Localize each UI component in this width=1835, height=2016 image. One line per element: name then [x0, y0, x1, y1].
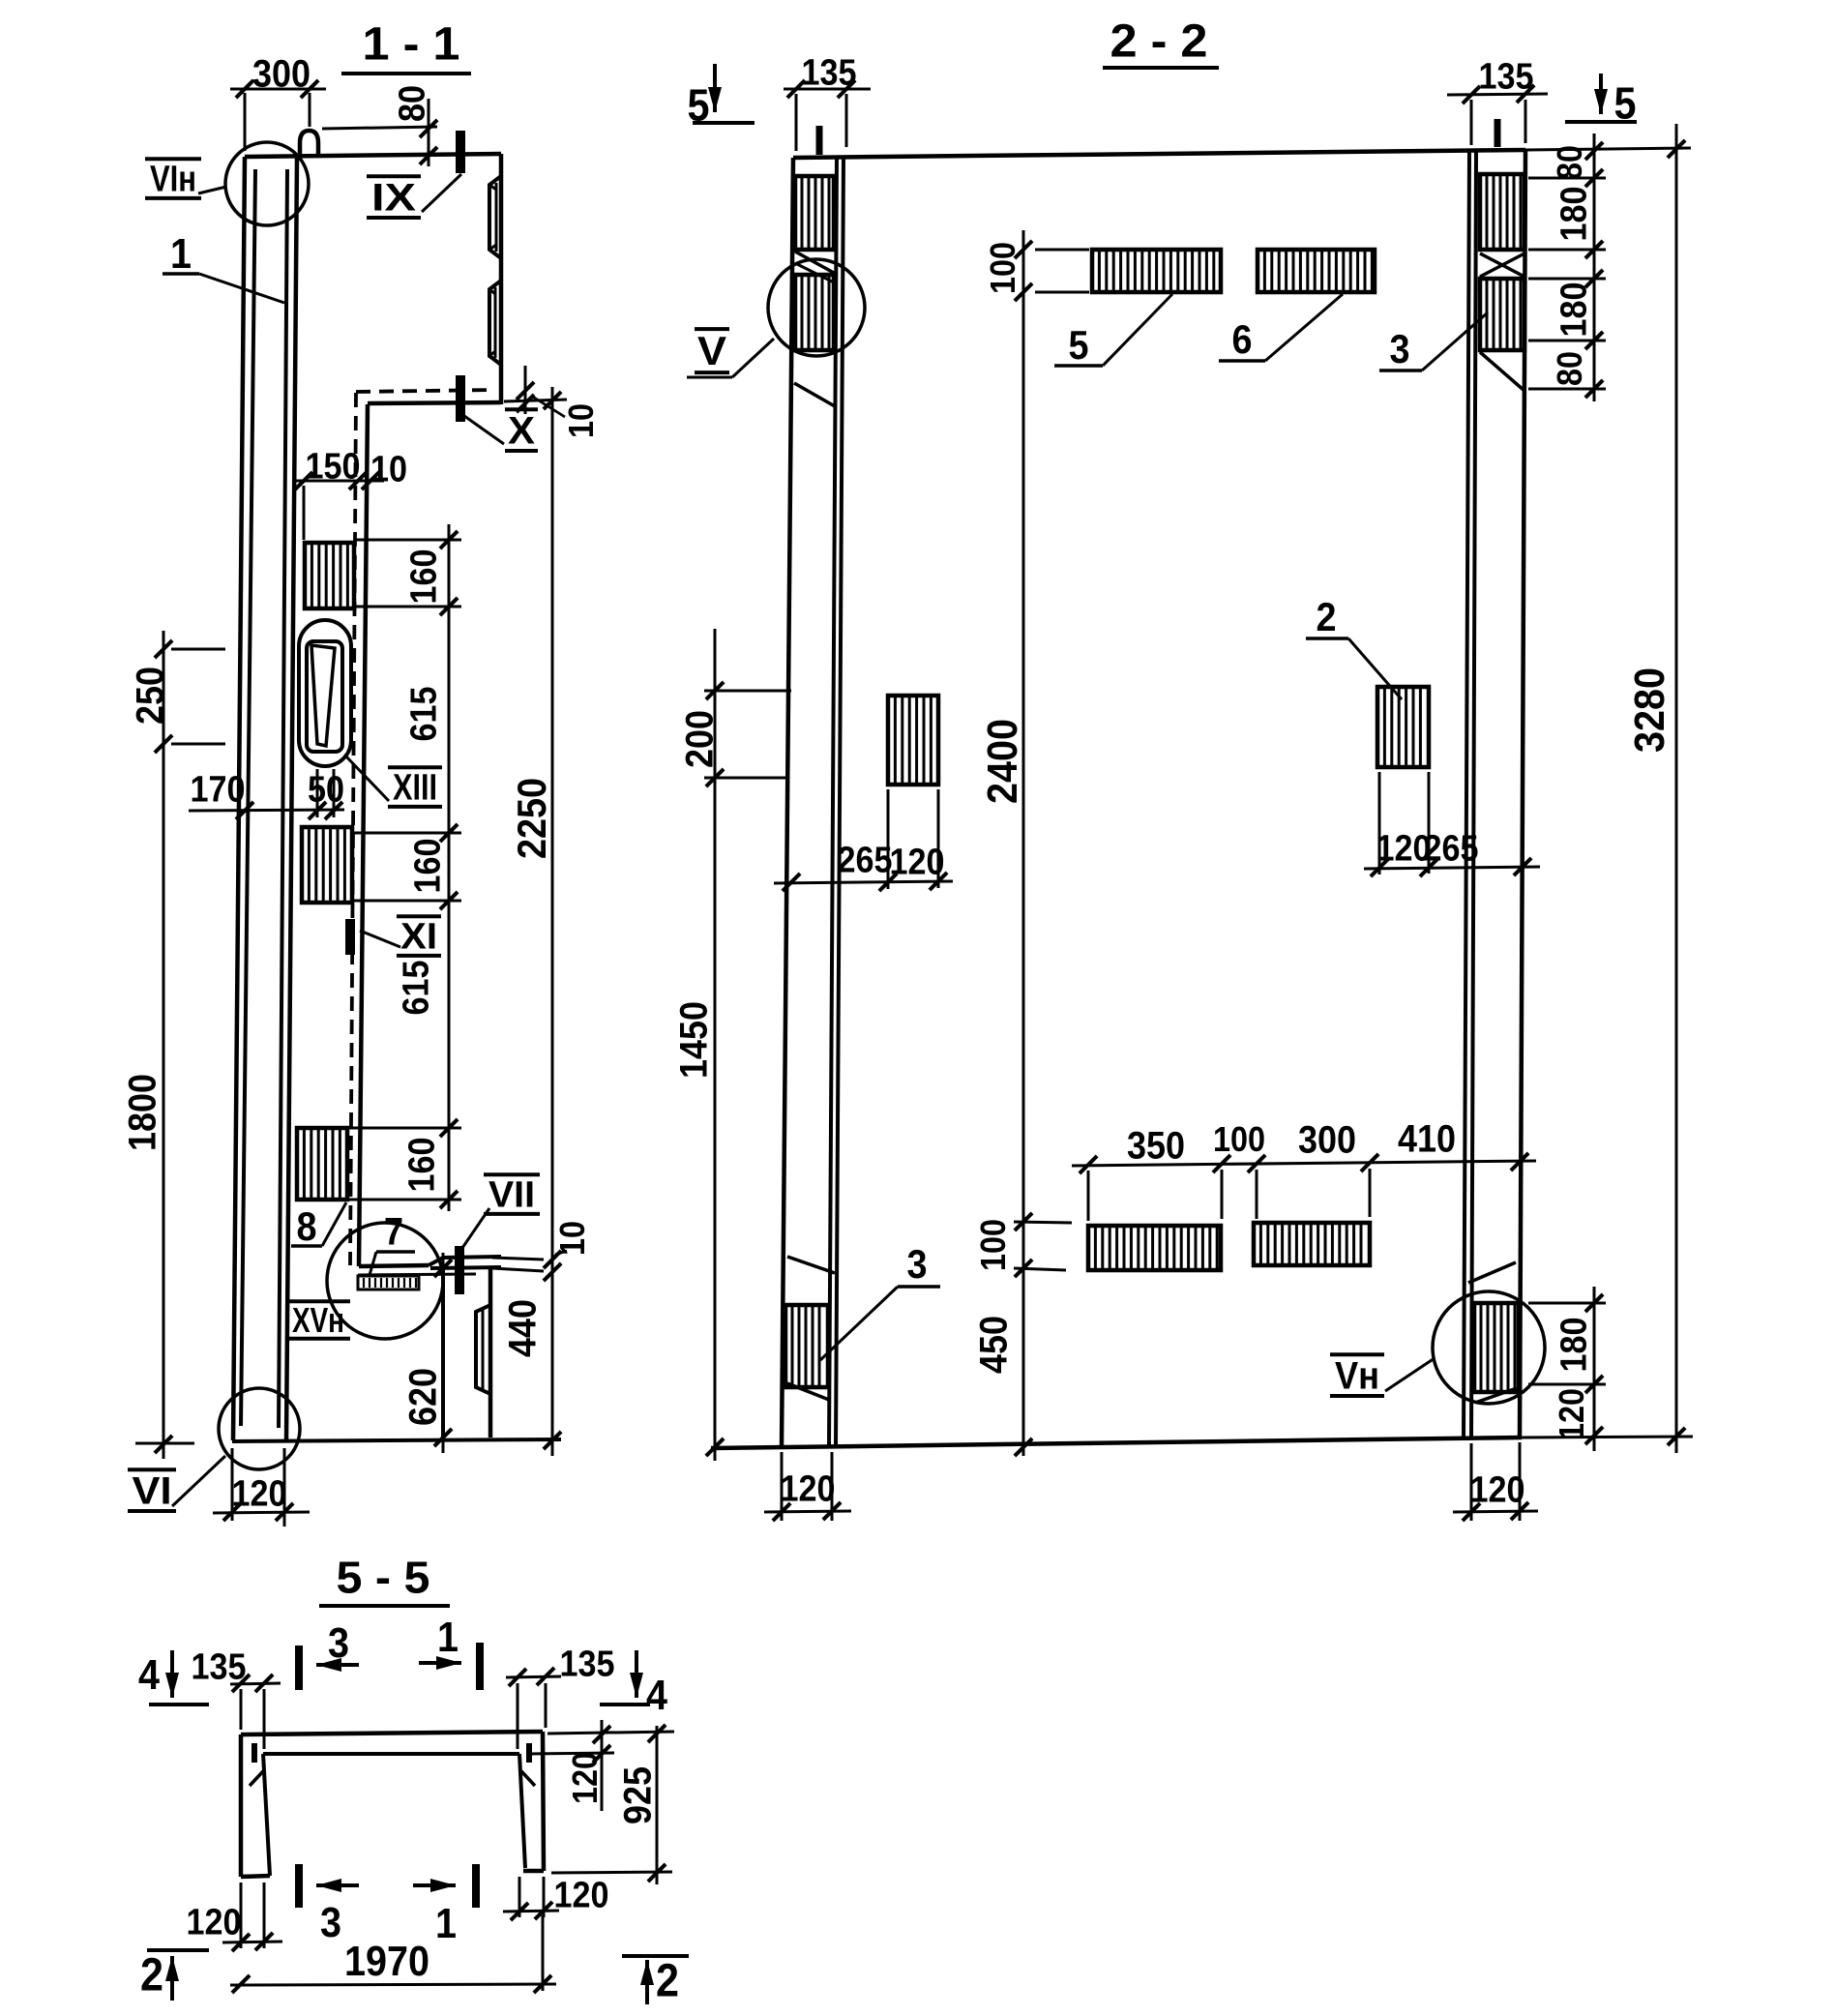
svg-text:4: 4: [646, 1672, 667, 1719]
svg-text:10: 10: [561, 403, 601, 438]
svg-text:3280: 3280: [1626, 667, 1673, 753]
svg-text:120: 120: [232, 1474, 287, 1515]
svg-text:10: 10: [370, 450, 407, 490]
svg-text:265: 265: [1424, 829, 1479, 870]
svg-text:V: V: [697, 328, 726, 373]
svg-text:IX: IX: [371, 176, 416, 219]
svg-text:4: 4: [138, 1651, 160, 1699]
svg-text:XIII: XIII: [393, 768, 437, 809]
svg-text:925: 925: [616, 1766, 659, 1824]
svg-text:450: 450: [972, 1316, 1015, 1374]
svg-text:50: 50: [308, 770, 344, 811]
svg-text:VIн: VIн: [150, 160, 196, 200]
svg-text:Vн: Vн: [1335, 1354, 1379, 1397]
svg-text:120: 120: [187, 1903, 242, 1943]
svg-text:XI: XI: [400, 917, 437, 958]
svg-text:1: 1: [170, 230, 192, 278]
svg-text:120: 120: [890, 843, 945, 883]
svg-text:180: 180: [1554, 1318, 1595, 1373]
svg-text:1: 1: [437, 1614, 459, 1661]
svg-text:2: 2: [1317, 594, 1337, 639]
svg-text:135: 135: [560, 1645, 615, 1685]
svg-text:2400: 2400: [979, 719, 1026, 804]
svg-text:6: 6: [1232, 316, 1253, 362]
svg-text:2: 2: [656, 1955, 679, 2006]
svg-text:2: 2: [140, 1949, 163, 2001]
svg-text:2 - 2: 2 - 2: [1110, 15, 1208, 67]
svg-text:X: X: [508, 409, 535, 452]
svg-text:170: 170: [191, 770, 246, 811]
svg-text:300: 300: [1298, 1118, 1356, 1161]
svg-text:250: 250: [129, 667, 171, 725]
svg-text:1970: 1970: [344, 1938, 429, 1985]
svg-text:VI: VI: [133, 1469, 172, 1512]
svg-text:3: 3: [1390, 326, 1410, 371]
svg-text:100: 100: [983, 242, 1022, 294]
svg-text:2250: 2250: [509, 778, 554, 859]
svg-text:135: 135: [1479, 57, 1534, 98]
svg-text:615: 615: [397, 961, 437, 1016]
svg-text:410: 410: [1398, 1117, 1456, 1160]
svg-text:1: 1: [435, 1900, 457, 1947]
svg-text:180: 180: [1554, 282, 1595, 338]
svg-text:VII: VII: [488, 1175, 535, 1216]
svg-text:100: 100: [1213, 1119, 1265, 1159]
svg-text:350: 350: [1127, 1124, 1185, 1167]
svg-text:3: 3: [320, 1899, 341, 1946]
svg-text:120: 120: [565, 1752, 605, 1804]
svg-text:5 - 5: 5 - 5: [337, 1553, 430, 1603]
svg-text:7: 7: [384, 1210, 403, 1253]
svg-text:5: 5: [1069, 322, 1089, 368]
svg-text:440: 440: [501, 1299, 544, 1357]
svg-text:135: 135: [192, 1647, 247, 1688]
svg-text:620: 620: [401, 1368, 444, 1426]
svg-text:180: 180: [1554, 187, 1595, 242]
svg-text:8: 8: [297, 1203, 317, 1249]
svg-text:160: 160: [408, 839, 449, 894]
svg-text:120: 120: [554, 1876, 609, 1916]
svg-text:120: 120: [781, 1469, 836, 1510]
svg-text:XVн: XVн: [292, 1300, 344, 1340]
svg-text:3: 3: [907, 1241, 928, 1287]
svg-text:1 - 1: 1 - 1: [363, 18, 460, 70]
svg-text:615: 615: [404, 687, 445, 742]
svg-text:150: 150: [306, 447, 361, 488]
svg-text:120: 120: [1470, 1470, 1525, 1511]
svg-text:1800: 1800: [121, 1074, 163, 1151]
svg-text:135: 135: [802, 53, 857, 94]
svg-text:300: 300: [252, 52, 311, 95]
svg-text:265: 265: [838, 841, 893, 881]
svg-text:100: 100: [973, 1219, 1013, 1271]
svg-text:10: 10: [552, 1221, 592, 1256]
svg-text:160: 160: [402, 1138, 443, 1193]
svg-text:80: 80: [393, 85, 433, 122]
svg-text:120: 120: [1552, 1388, 1591, 1440]
svg-text:160: 160: [404, 549, 445, 605]
svg-text:200: 200: [678, 710, 721, 768]
svg-text:1450: 1450: [672, 1001, 715, 1079]
svg-text:80: 80: [1550, 145, 1589, 180]
svg-text:80: 80: [1550, 351, 1589, 386]
